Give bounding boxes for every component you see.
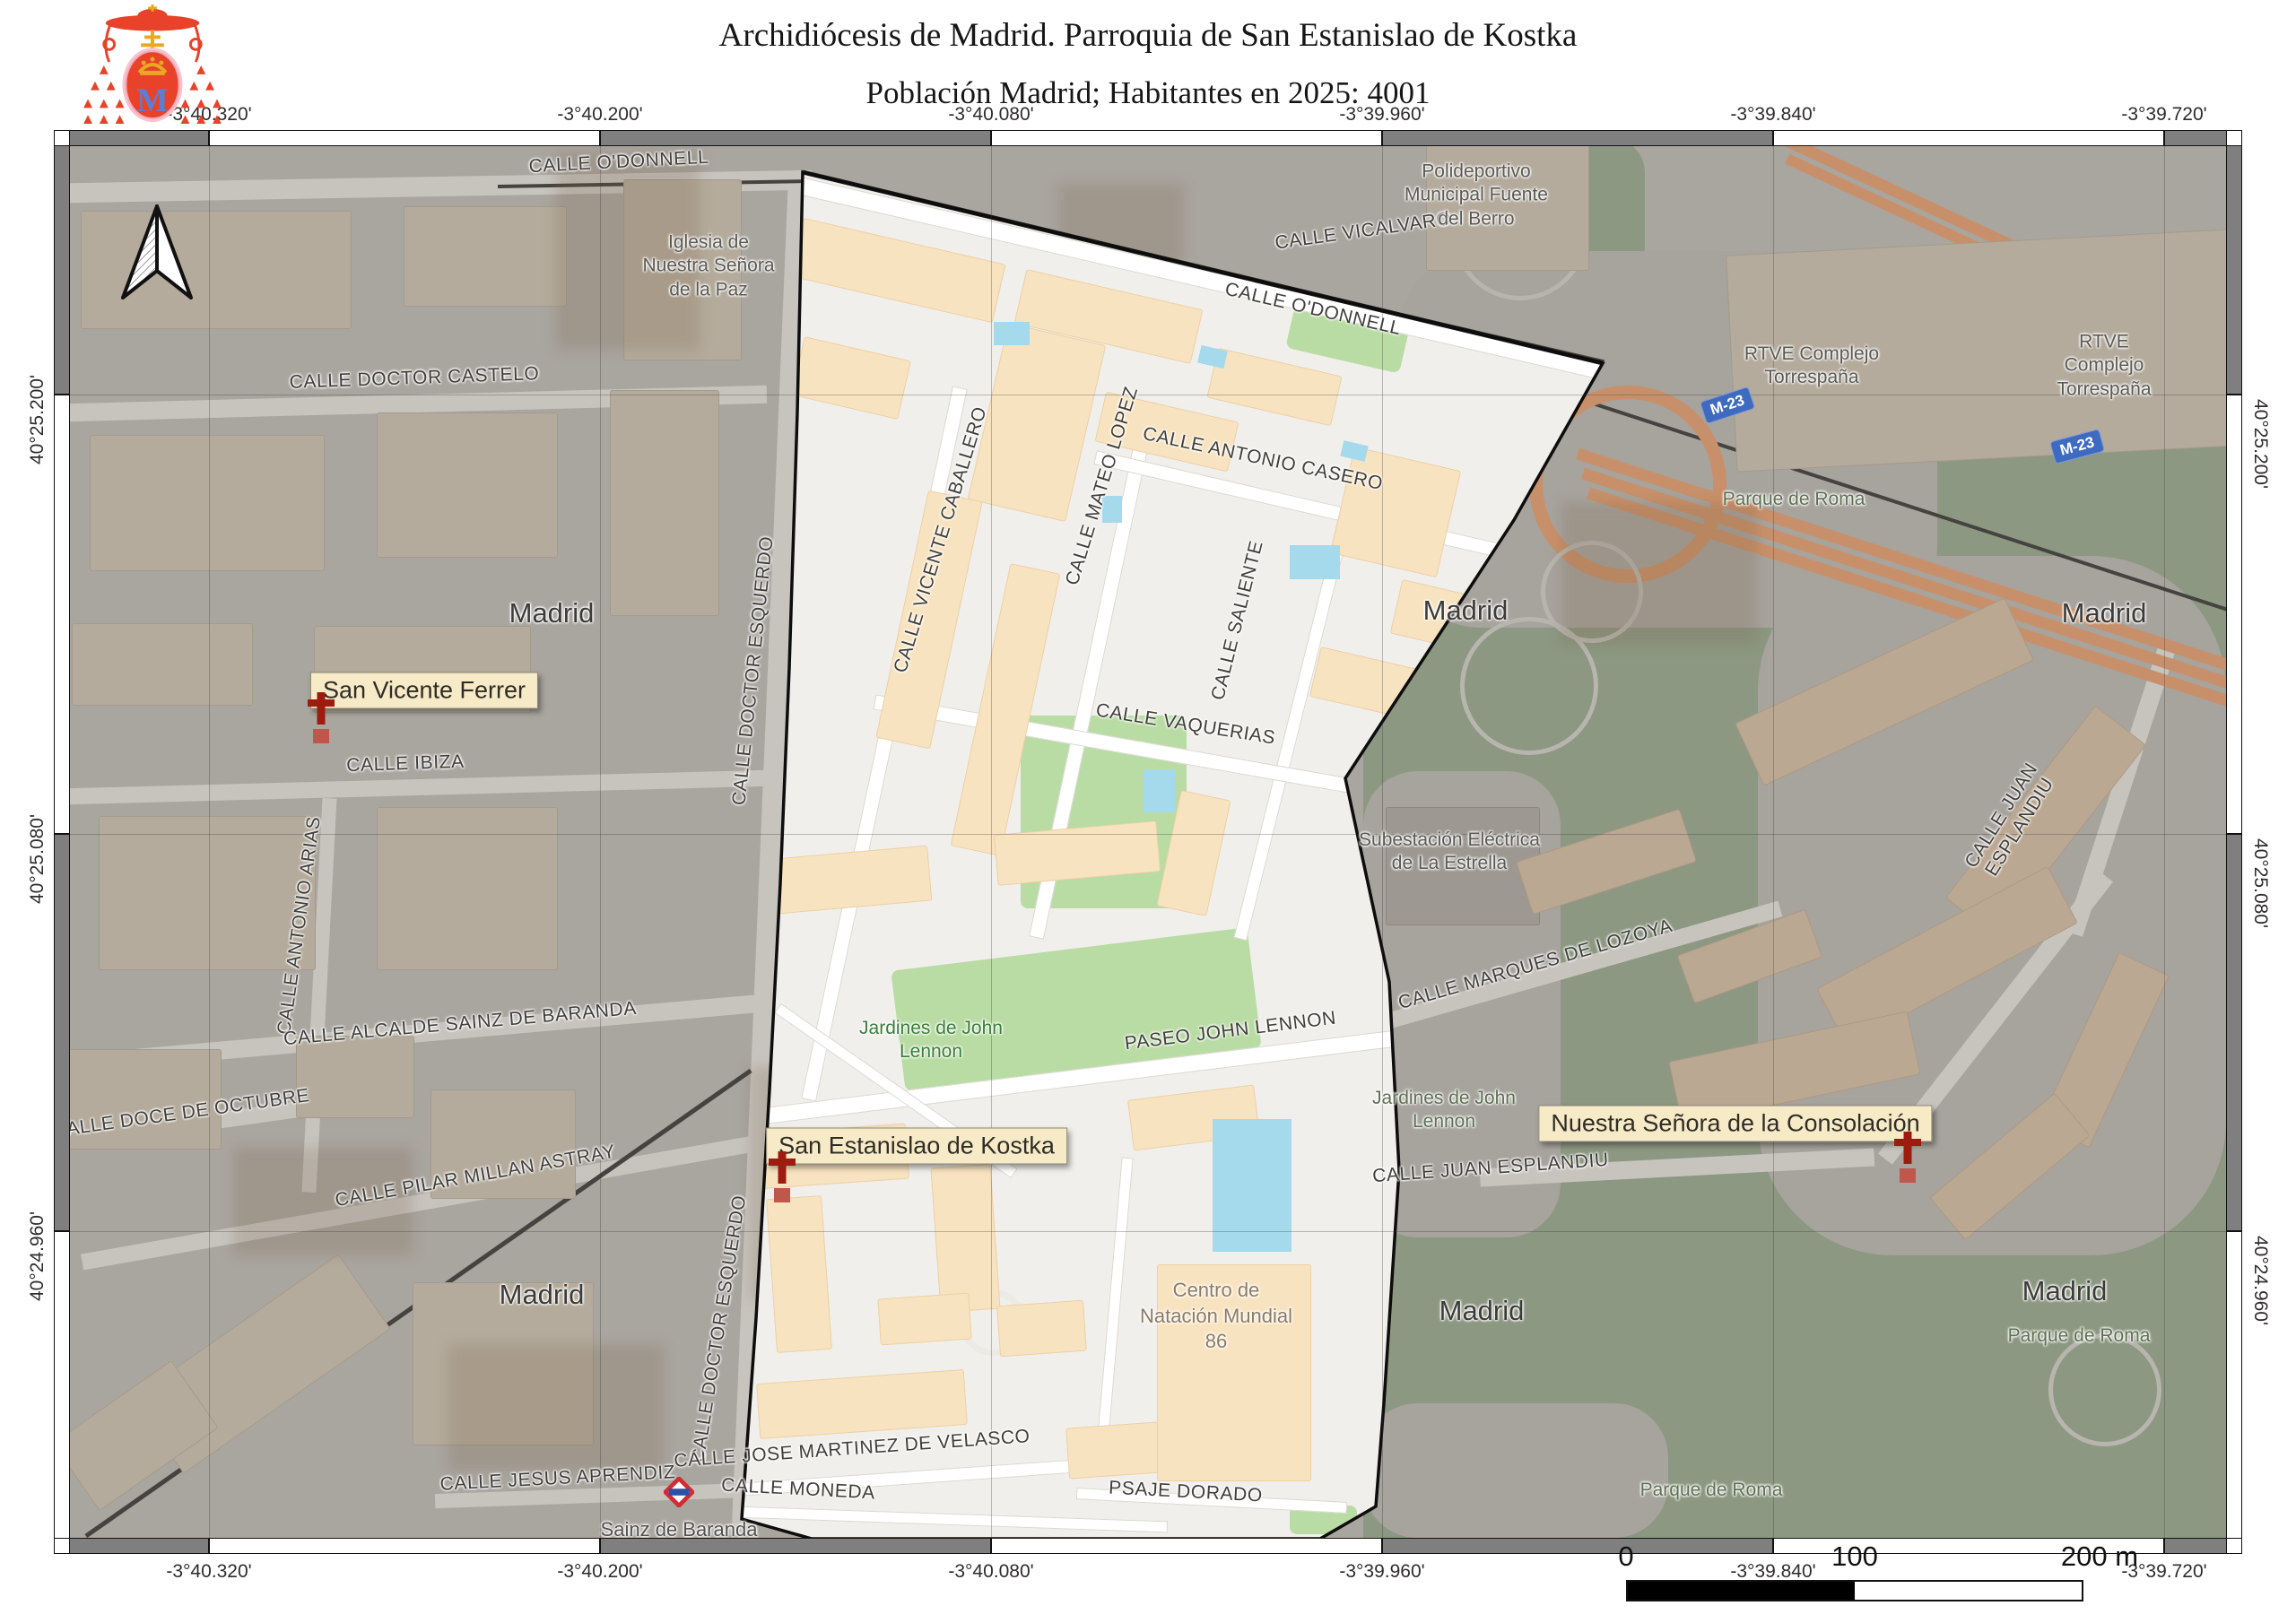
street-label: CALLE ALCALDE SAINZ DE BARANDA <box>283 998 638 1050</box>
street-label: CALLE ANTONIO ARIAS <box>274 815 326 1037</box>
map-title: Archidiócesis de Madrid. Parroquia de Sa… <box>0 16 2296 55</box>
lat-label-left: 40°25.200' <box>27 375 48 464</box>
archdiocese-crest-icon: M <box>77 4 228 127</box>
zebra-segment <box>1382 130 1773 146</box>
road-shield: M-23 <box>1700 386 1755 424</box>
place-label: Madrid <box>1423 595 1509 627</box>
frame-corner <box>2226 130 2242 146</box>
street-label: PSAJE DORADO <box>1109 1478 1264 1507</box>
scalebar-tick: 100 <box>1831 1541 1878 1573</box>
street-label: CALLE JUAN ESPLANDIU <box>1371 1150 1609 1187</box>
place-label: RTVE Complejo Torrespaña <box>1744 343 1879 390</box>
map-frame: CALLE O'DONNELLCALLE DOCTOR CASTELOCALLE… <box>54 130 2242 1554</box>
zebra-segment <box>54 395 70 834</box>
place-label: Jardines de John Lennon <box>859 1017 1003 1064</box>
scalebar-tick: 200 m <box>2061 1541 2138 1573</box>
zebra-segment <box>991 130 1382 146</box>
map-canvas: CALLE O'DONNELLCALLE DOCTOR CASTELOCALLE… <box>70 146 2226 1538</box>
place-label: Sainz de Baranda <box>601 1518 758 1538</box>
street-label: CALLE DOCE DE OCTUBRE <box>70 1085 311 1142</box>
zebra-segment <box>1773 130 2164 146</box>
street-label: CALLE MATEO LOPEZ <box>1062 384 1143 587</box>
street-label: CALLE JOSE MARTINEZ DE VELASCO <box>674 1426 1031 1472</box>
street-label: PASEO JOHN LENNON <box>1124 1008 1338 1055</box>
frame-corner <box>54 130 70 146</box>
street-label: CALLE DOCTOR ESQUERDO <box>688 1193 752 1464</box>
street-label: CALLE MONEDA <box>721 1475 876 1505</box>
lat-label-right: 40°25.200' <box>2249 399 2271 489</box>
zebra-segment <box>2226 834 2242 1231</box>
north-arrow-icon <box>119 204 195 303</box>
street-label: CALLE ANTONIO CASERO <box>1141 423 1385 495</box>
place-label: Madrid <box>2022 1275 2108 1307</box>
zebra-segment <box>54 130 70 395</box>
scalebar-tick: 0 <box>1618 1541 1633 1573</box>
street-label: CALLE O'DONNELL <box>1222 279 1403 341</box>
church-marker-icon <box>307 692 335 744</box>
lat-label-left: 40°25.080' <box>27 814 48 904</box>
metro-station-icon <box>664 1477 694 1507</box>
lat-label-right: 40°24.960' <box>2249 1236 2271 1325</box>
street-label: CALLE JESUS APRENDIZ <box>439 1462 676 1496</box>
place-label: Jardines de John Lennon <box>1372 1087 1516 1134</box>
zebra-segment <box>54 834 70 1231</box>
svg-text:M: M <box>136 82 168 119</box>
place-label: Madrid <box>509 597 595 629</box>
church-label: San Vicente Ferrer <box>310 673 538 709</box>
zebra-segment <box>600 130 991 146</box>
place-label: Madrid <box>1439 1295 1525 1327</box>
street-label: CALLE PILAR MILLAN ASTRAY <box>334 1141 617 1212</box>
place-label: Parque de Roma <box>2008 1324 2151 1348</box>
church-label: Nuestra Señora de la Consolación <box>1538 1106 1932 1142</box>
lon-label-top: -3°39.960' <box>1339 104 1424 126</box>
street-label: CALLE VICENTE CABALLERO <box>890 404 991 676</box>
church-marker-icon <box>768 1151 796 1203</box>
street-label: CALLE IBIZA <box>346 751 465 777</box>
lon-label-top: -3°40.080' <box>948 104 1033 126</box>
street-label: CALLE DOCTOR ESQUERDO <box>728 535 778 806</box>
map-subtitle: Población Madrid; Habitantes en 2025: 40… <box>0 75 2296 111</box>
scalebar-labels: 0100200 m <box>0 1541 2296 1571</box>
street-label: CALLE JUAN ESPLANDIU <box>1935 719 2086 924</box>
street-label: CALLE VAQUERIAS <box>1094 699 1277 749</box>
place-label: Madrid <box>2062 597 2147 629</box>
label-layer: CALLE O'DONNELLCALLE DOCTOR CASTELOCALLE… <box>70 146 2226 1538</box>
zebra-segment <box>2226 130 2242 395</box>
lat-label-right: 40°25.080' <box>2249 838 2271 928</box>
zebra-segment <box>2226 1231 2242 1554</box>
lon-label-top: -3°39.840' <box>1730 104 1815 126</box>
street-label: CALLE DOCTOR CASTELO <box>289 363 540 394</box>
zebra-segment <box>54 1231 70 1554</box>
lon-label-top: -3°40.200' <box>557 104 642 126</box>
map-document: { "header": { "title": "Archidiócesis de… <box>0 0 2296 1623</box>
place-label: Centro de Natación Mundial 86 <box>1140 1278 1292 1355</box>
place-label: Parque de Roma <box>1640 1479 1783 1502</box>
church-marker-icon <box>1893 1132 1922 1184</box>
place-label: RTVE Complejo Torrespaña <box>2043 331 2165 402</box>
lon-label-top: -3°39.720' <box>2121 104 2206 126</box>
street-label: CALLE O'DONNELL <box>528 147 709 178</box>
place-label: Subestación Eléctrica de La Estrella <box>1359 829 1540 876</box>
place-label: Madrid <box>500 1279 585 1311</box>
street-label: CALLE VICALVARO <box>1274 208 1453 254</box>
place-label: Polideportivo Municipal Fuente del Berro <box>1405 161 1548 231</box>
street-label: CALLE MARQUES DE LOZOYA <box>1396 916 1674 1014</box>
church-label: San Estanislao de Kostka <box>766 1128 1067 1165</box>
zebra-segment <box>54 130 209 146</box>
scalebar <box>1626 1580 2083 1601</box>
place-label: Parque de Roma <box>1723 488 1865 511</box>
zebra-segment <box>2226 395 2242 834</box>
road-shield: M-23 <box>2049 429 2105 464</box>
lat-label-left: 40°24.960' <box>27 1211 48 1301</box>
place-label: Iglesia de Nuestra Señora de la Paz <box>642 231 774 302</box>
zebra-segment <box>209 130 600 146</box>
street-label: CALLE SALIENTE <box>1207 539 1267 703</box>
